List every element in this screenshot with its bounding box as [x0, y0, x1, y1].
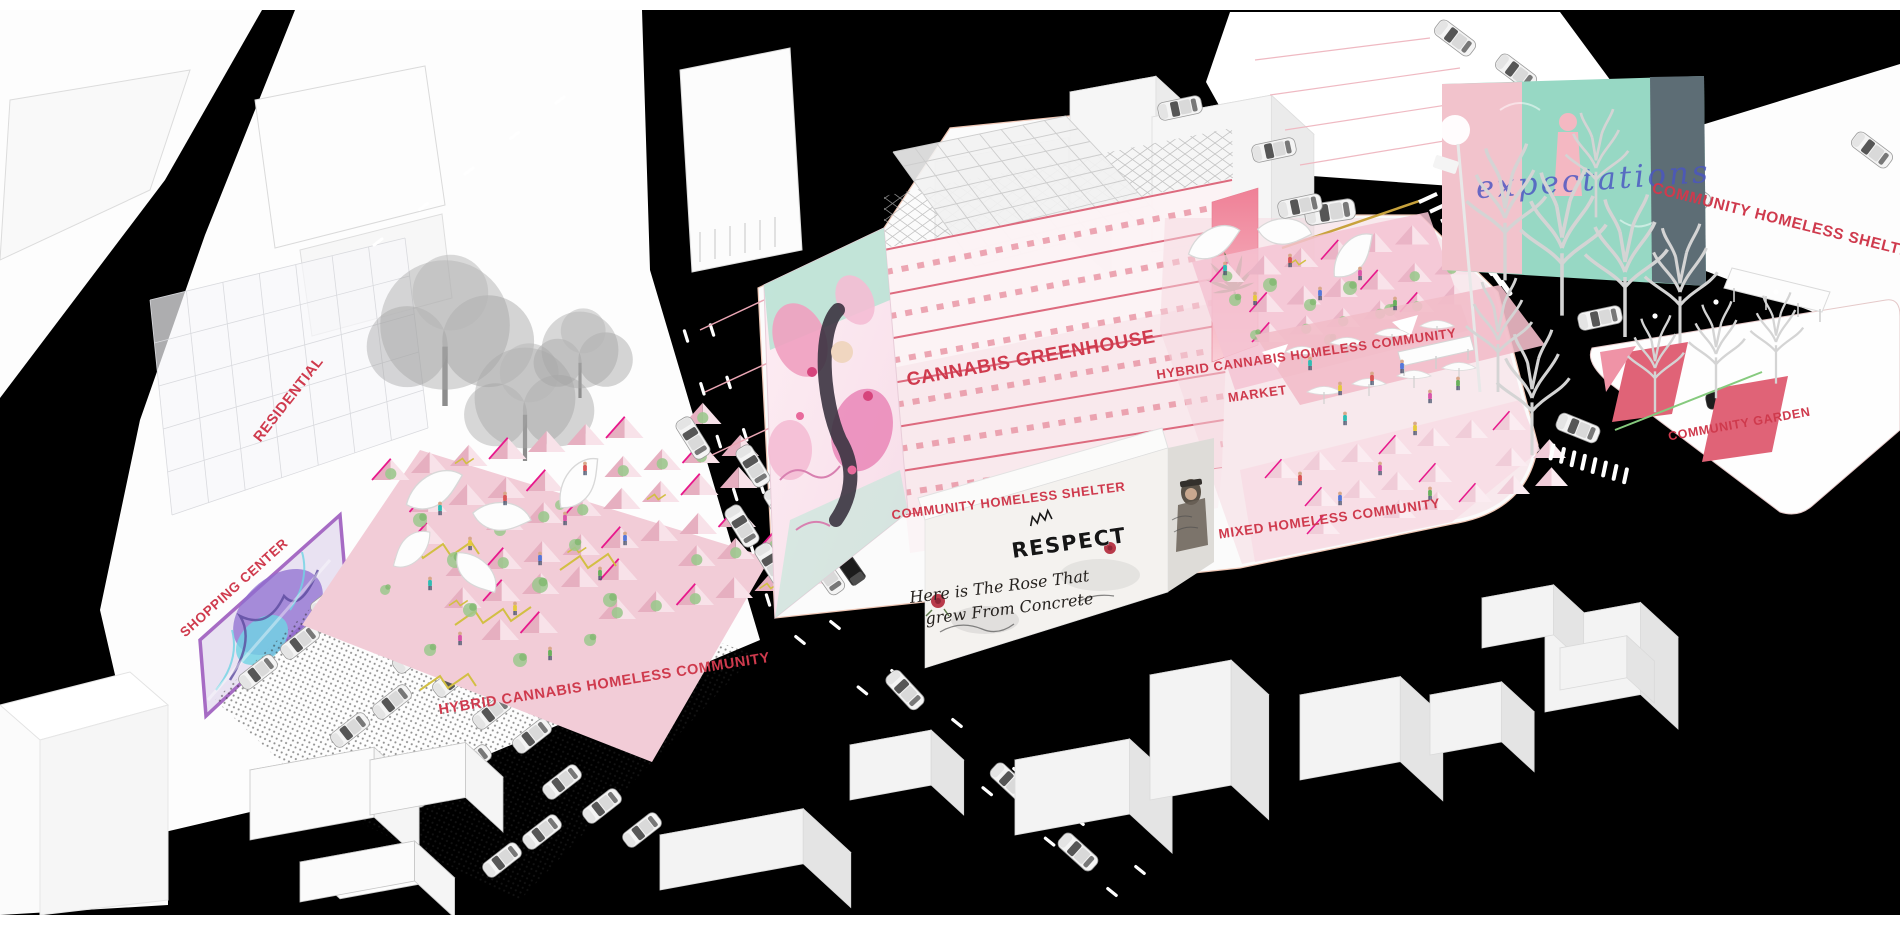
site-plan-stage: expectations RESIDENTIAL SHOPPING CENTER… — [0, 0, 1900, 927]
bottom-left-building-front — [40, 705, 168, 915]
building-slab — [680, 48, 802, 272]
bottom-margin — [0, 915, 1900, 927]
expectations-mural: expectations — [1442, 76, 1712, 286]
site-plan-rendering: expectations RESIDENTIAL SHOPPING CENTER… — [0, 0, 1900, 927]
